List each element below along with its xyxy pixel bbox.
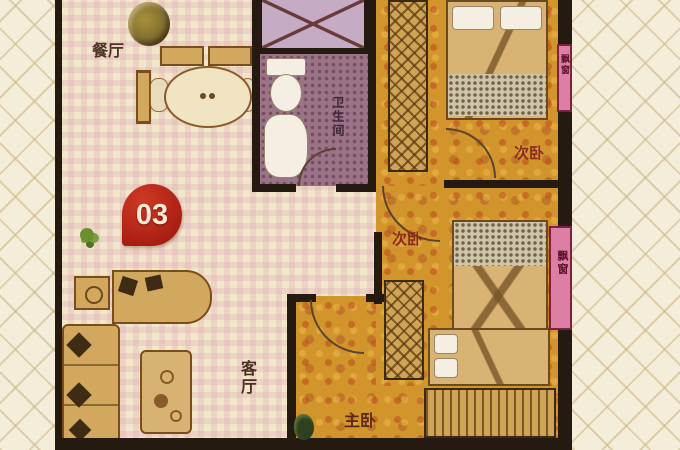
room-label-bedroom-mid: 次卧 <box>392 232 422 247</box>
bed-pillow <box>434 358 458 378</box>
bed-pillow <box>434 334 458 354</box>
dining-bench-right <box>208 46 252 66</box>
wall-bottom-outer <box>55 438 572 450</box>
table-decor-dot <box>209 93 215 99</box>
wall-bedrooms-divider <box>444 180 566 188</box>
wall-left-outer <box>55 0 62 450</box>
console-table <box>136 70 151 124</box>
wall-under-bathroom-b <box>336 184 376 192</box>
room-label-bathroom: 卫生间 <box>332 96 344 138</box>
bay-window-bottom: 飘窗 <box>549 226 572 330</box>
wall-under-bathroom-a <box>252 184 296 192</box>
bay-window-bottom-label: 飘窗 <box>556 250 567 276</box>
wardrobe-master-bottom <box>424 388 556 438</box>
bed-blanket <box>448 74 546 116</box>
wall-dining-bathroom <box>252 0 260 190</box>
room-label-master: 主卧 <box>344 414 376 430</box>
wall-right-outer-3 <box>558 328 572 450</box>
wall-master-top-b <box>366 294 384 302</box>
table-decor-dot <box>200 93 206 99</box>
wardrobe-master-side <box>384 280 424 380</box>
unit-badge-number: 03 <box>136 199 168 232</box>
wall-right-outer-1 <box>558 0 572 46</box>
wardrobe-top <box>388 0 428 172</box>
coffee-table-decor <box>154 394 168 408</box>
room-label-bedroom-top: 次卧 <box>514 146 544 161</box>
room-label-living: 客厅 <box>238 360 254 396</box>
bed-blanket <box>454 222 546 266</box>
shaft-x-icon <box>262 0 364 48</box>
bay-window-top-label: 飘窗 <box>560 54 569 76</box>
unit-badge: 03 <box>122 184 182 246</box>
coffee-table-decor <box>160 370 174 384</box>
dining-table <box>164 66 252 128</box>
bay-window-top: 飘窗 <box>557 44 572 112</box>
plant-icon <box>128 2 170 46</box>
bed-master <box>428 328 550 386</box>
shaft-box <box>258 0 368 54</box>
bed-pillow <box>452 6 494 30</box>
plant-small-icon <box>80 228 94 242</box>
toilet-bowl-icon <box>270 74 302 112</box>
side-table <box>74 276 110 310</box>
room-label-dining: 餐厅 <box>92 44 124 60</box>
wall-bathroom-bedroom <box>368 0 376 190</box>
wall-right-outer-2 <box>558 110 572 226</box>
coffee-table <box>140 350 192 434</box>
plant-dark-icon <box>294 414 314 440</box>
bed-top <box>446 0 548 120</box>
bed-pillow <box>500 6 542 30</box>
dining-bench-left <box>160 46 204 66</box>
coffee-table-decor <box>170 410 182 422</box>
floor-plan: 飘窗 飘窗 <box>0 0 680 450</box>
side-table-decor <box>85 286 103 304</box>
